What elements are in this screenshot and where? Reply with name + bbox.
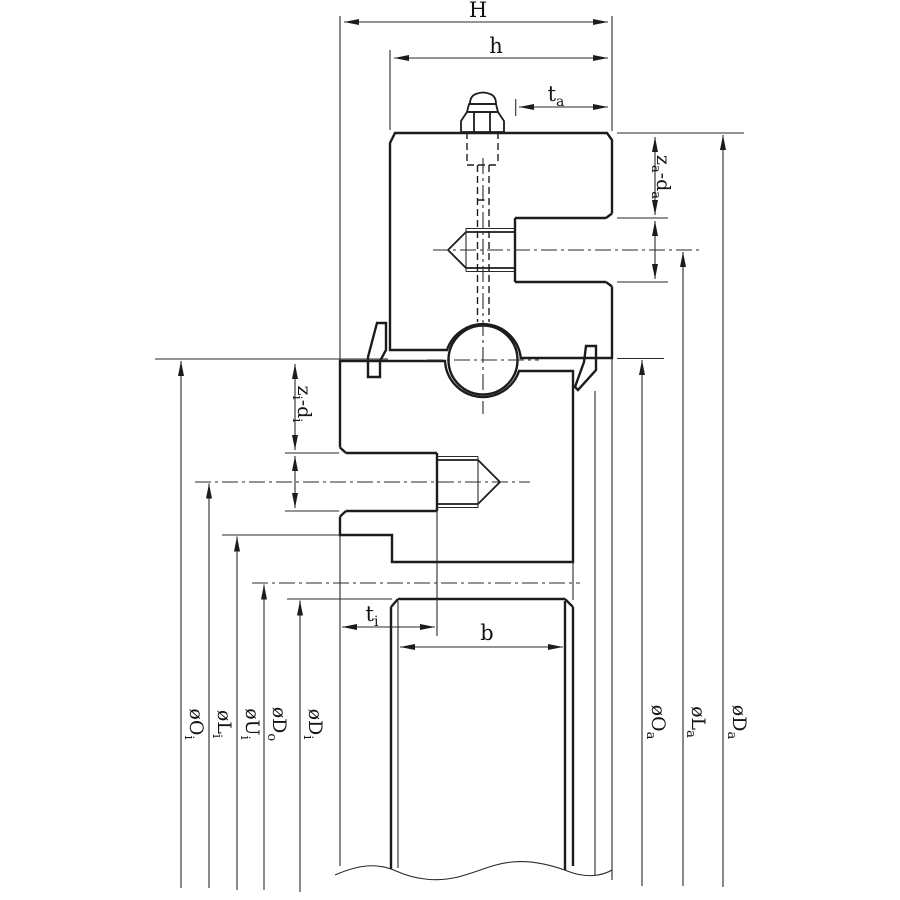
- dim-label-phi-Li: øLi: [209, 710, 235, 738]
- dim-phi-Li: øLi: [209, 484, 235, 889]
- grease-passage-hidden-lines: [467, 132, 498, 414]
- dim-label-phi-La: øLa: [683, 706, 709, 738]
- dim-label-H: H: [469, 0, 487, 22]
- dim-ti: ti: [342, 511, 437, 636]
- drawing-canvas: H h ta za-da øOa øLa øDa z: [0, 0, 900, 900]
- dim-h: h: [390, 34, 608, 130]
- dim-label-zi-di: zi-di: [289, 386, 315, 423]
- dim-label-b: b: [480, 621, 493, 645]
- dim-label-ta: ta: [548, 82, 565, 110]
- dim-phi-Oa: øOa: [617, 359, 669, 887]
- dim-za-da: za-da: [617, 133, 744, 282]
- dim-label-phi-Oa: øOa: [643, 705, 669, 740]
- shaft-section: [335, 562, 612, 880]
- dim-label-za-da: za-da: [648, 155, 674, 199]
- grease-fitting: [461, 93, 504, 133]
- break-line: [335, 862, 612, 880]
- bearing-cross-section-drawing: H h ta za-da øOa øLa øDa z: [0, 0, 900, 900]
- dim-label-ti: ti: [366, 602, 379, 630]
- dim-H: H: [340, 0, 612, 360]
- dim-label-phi-Do: øDo: [264, 707, 290, 742]
- dim-phi-Da: øDa: [723, 135, 750, 887]
- dim-label-phi-Oi: øOi: [181, 708, 207, 739]
- dim-label-phi-Da: øDa: [724, 705, 750, 740]
- dim-label-phi-Di: øDi: [300, 709, 326, 740]
- dim-b: b: [400, 621, 563, 647]
- dim-phi-Oi: øOi: [181, 361, 207, 888]
- dim-phi-La: øLa: [683, 252, 709, 886]
- dim-ta: ta: [516, 82, 608, 116]
- dim-label-h: h: [489, 34, 503, 58]
- right-seal: [575, 346, 596, 390]
- dim-label-phi-Ui: øUi: [237, 708, 263, 740]
- left-seal: [368, 323, 386, 377]
